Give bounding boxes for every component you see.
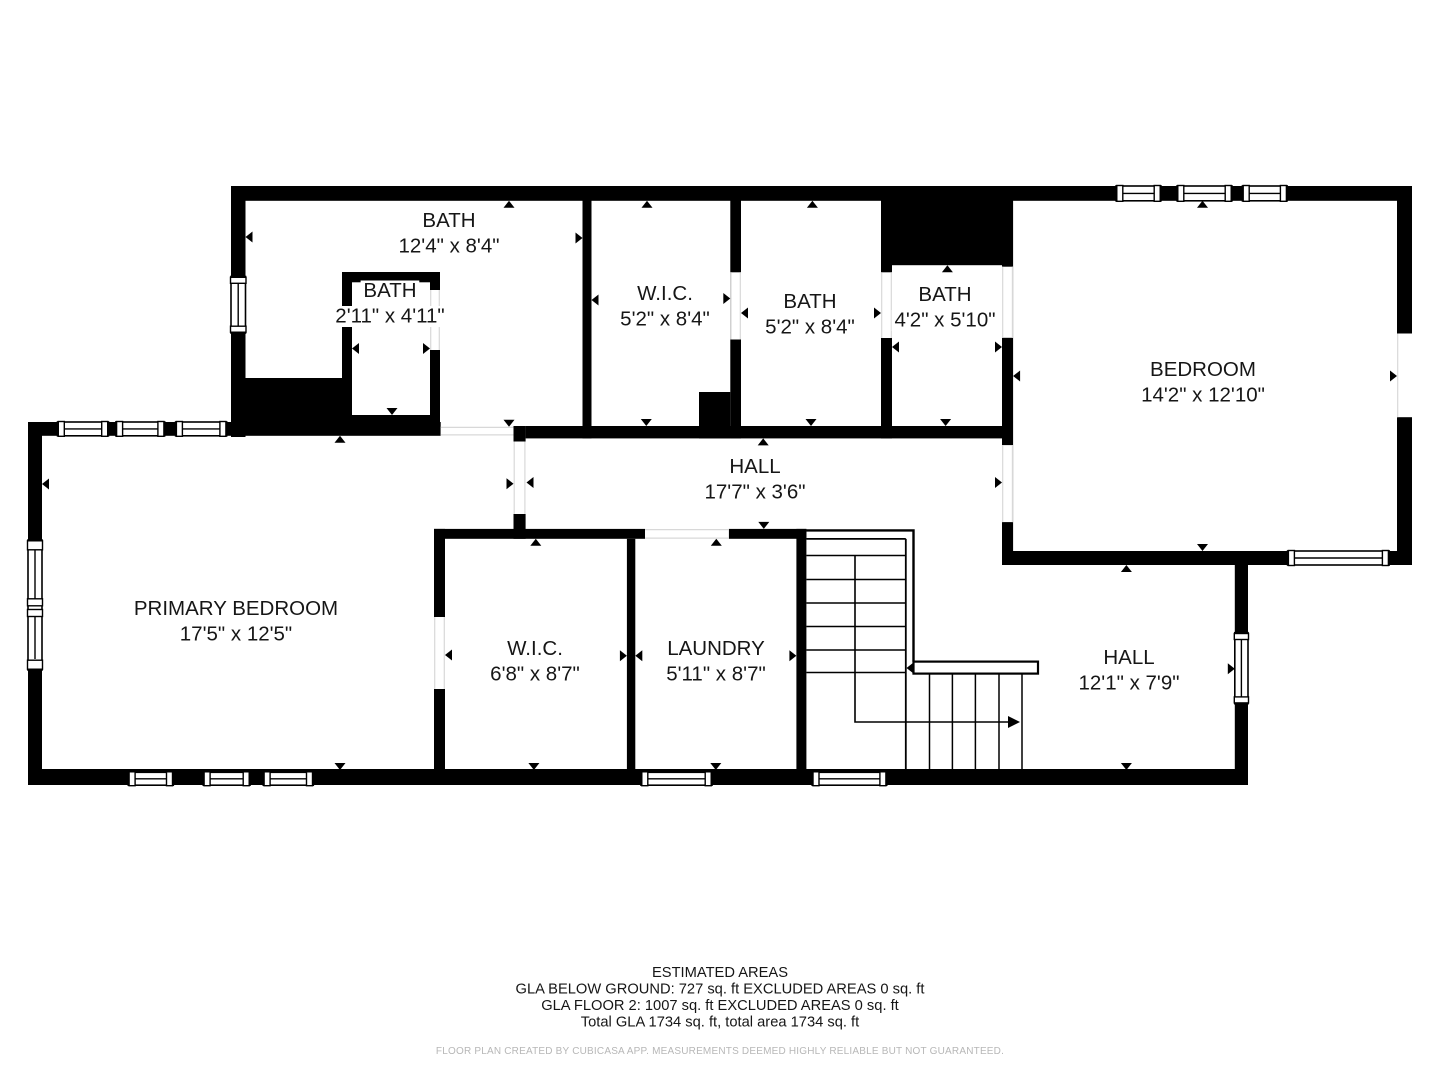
svg-text:2'11" x 4'11": 2'11" x 4'11": [335, 305, 444, 328]
svg-text:ESTIMATED AREAS: ESTIMATED AREAS: [652, 965, 788, 981]
svg-text:5'11" x 8'7": 5'11" x 8'7": [666, 663, 766, 686]
svg-text:HALL: HALL: [1103, 646, 1154, 669]
svg-text:6'8" x 8'7": 6'8" x 8'7": [490, 663, 580, 686]
svg-text:14'2" x 12'10": 14'2" x 12'10": [1141, 384, 1265, 407]
svg-text:17'5" x 12'5": 17'5" x 12'5": [180, 623, 292, 646]
svg-text:W.I.C.: W.I.C.: [637, 282, 693, 305]
svg-text:HALL: HALL: [729, 455, 780, 478]
svg-text:W.I.C.: W.I.C.: [507, 637, 563, 660]
svg-text:BATH: BATH: [422, 209, 475, 232]
svg-text:PRIMARY BEDROOM: PRIMARY BEDROOM: [134, 597, 338, 620]
svg-text:BATH: BATH: [783, 290, 836, 313]
svg-text:12'4" x 8'4": 12'4" x 8'4": [398, 235, 499, 258]
svg-text:BEDROOM: BEDROOM: [1150, 358, 1256, 381]
svg-text:FLOOR PLAN CREATED BY CUBICASA: FLOOR PLAN CREATED BY CUBICASA APP. MEAS…: [436, 1046, 1004, 1057]
svg-text:17'7" x 3'6": 17'7" x 3'6": [704, 481, 805, 504]
svg-text:BATH: BATH: [918, 283, 971, 306]
svg-text:5'2" x 8'4": 5'2" x 8'4": [765, 316, 855, 339]
svg-text:5'2" x 8'4": 5'2" x 8'4": [620, 308, 710, 331]
svg-text:Total GLA 1734 sq. ft, total a: Total GLA 1734 sq. ft, total area 1734 s…: [581, 1015, 859, 1031]
svg-text:GLA FLOOR 2: 1007 sq. ft EXCLU: GLA FLOOR 2: 1007 sq. ft EXCLUDED AREAS …: [541, 998, 899, 1014]
svg-text:12'1" x 7'9": 12'1" x 7'9": [1078, 672, 1179, 695]
svg-text:LAUNDRY: LAUNDRY: [667, 637, 765, 660]
svg-text:BATH: BATH: [363, 279, 416, 302]
svg-text:4'2" x 5'10": 4'2" x 5'10": [894, 309, 995, 332]
svg-text:GLA BELOW GROUND: 727 sq. ft E: GLA BELOW GROUND: 727 sq. ft EXCLUDED AR…: [516, 982, 925, 998]
